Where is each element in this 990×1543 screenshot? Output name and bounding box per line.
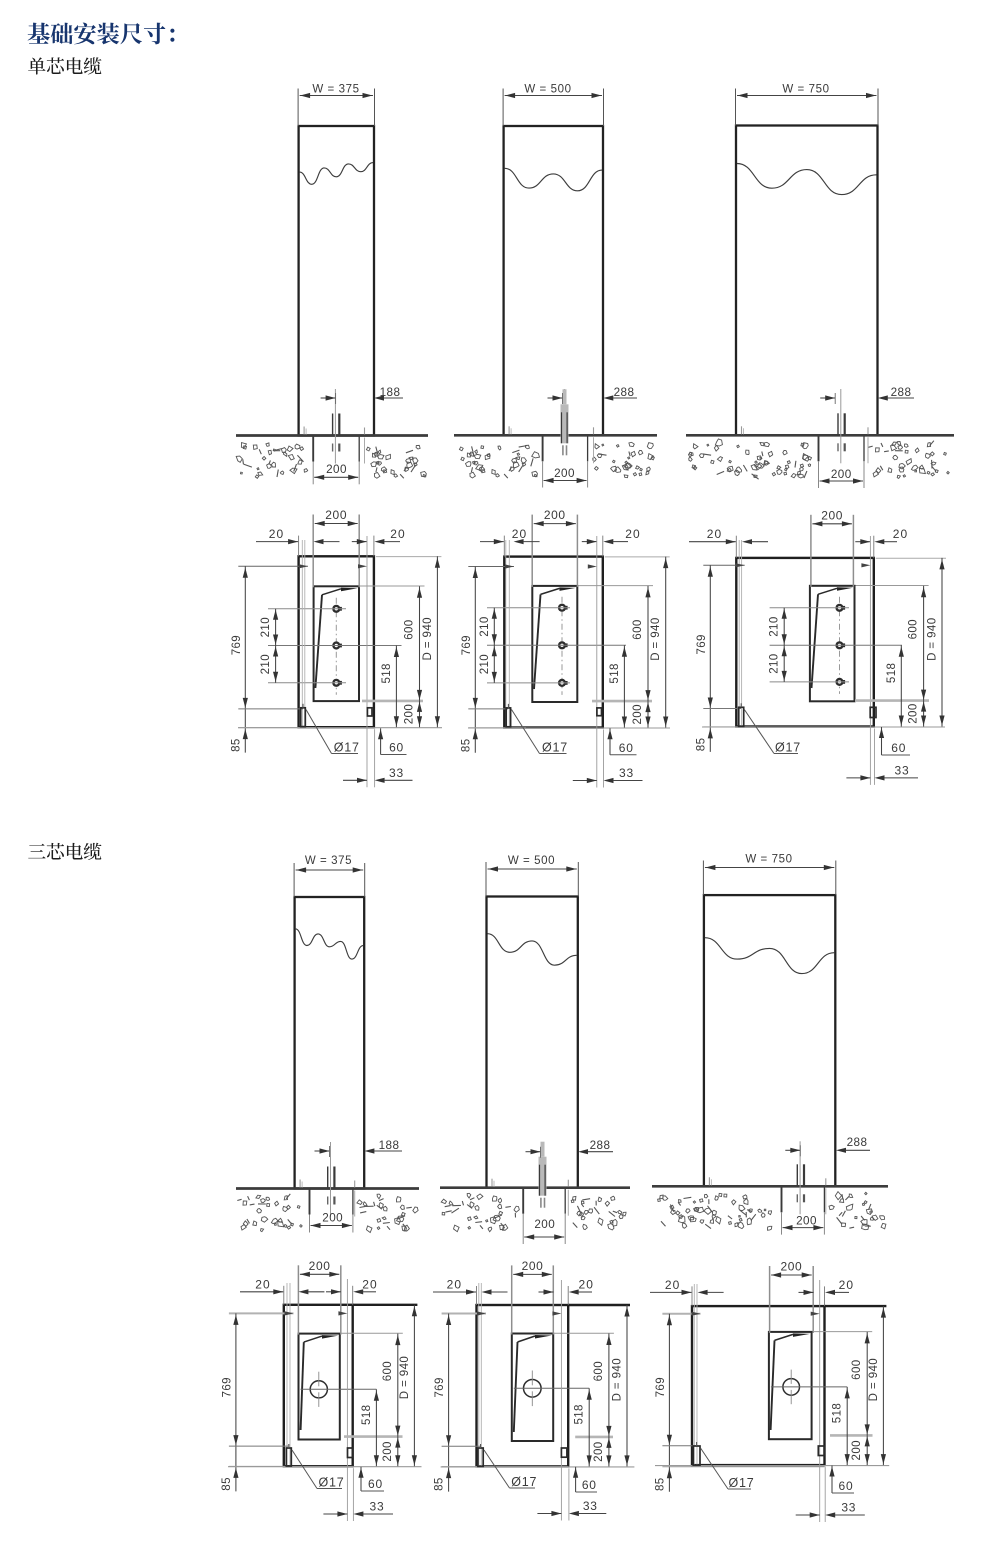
svg-text:33: 33 xyxy=(841,1501,856,1515)
svg-text:W = 375: W = 375 xyxy=(312,84,359,96)
svg-text:20: 20 xyxy=(625,527,641,541)
svg-text:33: 33 xyxy=(370,1500,385,1514)
svg-text:D = 940: D = 940 xyxy=(927,617,939,660)
svg-text:200: 200 xyxy=(821,508,843,522)
svg-text:600: 600 xyxy=(404,619,416,639)
svg-text:518: 518 xyxy=(574,1404,586,1424)
svg-text:200: 200 xyxy=(831,468,852,481)
svg-text:20: 20 xyxy=(579,1278,595,1292)
svg-text:518: 518 xyxy=(832,1403,844,1423)
svg-text:769: 769 xyxy=(696,634,708,654)
svg-text:85: 85 xyxy=(460,739,472,753)
svg-text:200: 200 xyxy=(404,704,416,724)
svg-text:D = 940: D = 940 xyxy=(650,617,662,660)
svg-text:769: 769 xyxy=(434,1377,446,1397)
svg-text:60: 60 xyxy=(582,1478,597,1492)
svg-text:20: 20 xyxy=(362,1277,378,1291)
svg-text:200: 200 xyxy=(544,508,566,522)
svg-text:85: 85 xyxy=(695,738,707,752)
svg-text:20: 20 xyxy=(269,527,285,541)
svg-text:518: 518 xyxy=(609,663,621,683)
svg-text:200: 200 xyxy=(325,508,347,522)
svg-text:20: 20 xyxy=(255,1277,271,1291)
svg-text:W = 750: W = 750 xyxy=(745,854,792,866)
svg-text:Ø17: Ø17 xyxy=(318,1476,344,1490)
svg-text:60: 60 xyxy=(389,741,404,755)
svg-text:33: 33 xyxy=(895,763,910,777)
svg-text:85: 85 xyxy=(230,738,242,752)
svg-text:288: 288 xyxy=(847,1136,868,1149)
svg-text:W = 750: W = 750 xyxy=(782,84,829,96)
svg-text:Ø17: Ø17 xyxy=(775,741,801,755)
svg-text:200: 200 xyxy=(780,1260,802,1274)
svg-text:210: 210 xyxy=(769,616,781,636)
svg-text:60: 60 xyxy=(368,1477,383,1491)
svg-text:33: 33 xyxy=(619,766,634,780)
svg-text:188: 188 xyxy=(379,1139,400,1152)
svg-text:33: 33 xyxy=(389,766,404,780)
svg-text:288: 288 xyxy=(614,386,635,399)
svg-text:200: 200 xyxy=(554,467,575,480)
svg-text:20: 20 xyxy=(893,527,909,541)
svg-text:518: 518 xyxy=(381,663,393,683)
svg-text:200: 200 xyxy=(522,1259,544,1273)
svg-text:210: 210 xyxy=(479,654,491,674)
svg-text:200: 200 xyxy=(326,463,347,476)
svg-text:288: 288 xyxy=(891,386,912,399)
svg-text:200: 200 xyxy=(534,1218,555,1231)
svg-text:288: 288 xyxy=(590,1139,611,1152)
svg-text:Ø17: Ø17 xyxy=(542,741,568,755)
svg-text:200: 200 xyxy=(851,1440,863,1460)
svg-text:60: 60 xyxy=(839,1479,854,1493)
svg-text:200: 200 xyxy=(632,704,644,724)
svg-text:20: 20 xyxy=(707,527,723,541)
svg-text:33: 33 xyxy=(583,1499,598,1513)
svg-text:600: 600 xyxy=(851,1359,863,1379)
svg-text:D = 940: D = 940 xyxy=(399,1356,411,1399)
svg-text:518: 518 xyxy=(886,663,898,683)
svg-text:Ø17: Ø17 xyxy=(334,741,360,755)
svg-text:Ø17: Ø17 xyxy=(728,1476,754,1490)
svg-text:210: 210 xyxy=(479,616,491,636)
svg-text:188: 188 xyxy=(380,386,401,399)
svg-text:D = 940: D = 940 xyxy=(612,1358,624,1401)
svg-text:W = 500: W = 500 xyxy=(508,855,555,867)
svg-text:200: 200 xyxy=(382,1441,394,1461)
svg-text:85: 85 xyxy=(221,1477,233,1491)
svg-text:60: 60 xyxy=(619,741,634,755)
svg-text:600: 600 xyxy=(908,619,920,639)
svg-text:600: 600 xyxy=(593,1361,605,1381)
svg-text:W = 375: W = 375 xyxy=(305,855,352,867)
svg-text:60: 60 xyxy=(891,741,906,755)
svg-text:769: 769 xyxy=(461,635,473,655)
svg-text:200: 200 xyxy=(309,1259,331,1273)
svg-text:20: 20 xyxy=(839,1278,855,1292)
svg-text:85: 85 xyxy=(654,1477,666,1491)
svg-text:769: 769 xyxy=(655,1377,667,1397)
svg-text:200: 200 xyxy=(322,1212,343,1225)
svg-text:518: 518 xyxy=(361,1405,373,1425)
svg-text:769: 769 xyxy=(221,1377,233,1397)
svg-text:D = 940: D = 940 xyxy=(422,617,434,660)
svg-text:600: 600 xyxy=(382,1361,394,1381)
svg-text:85: 85 xyxy=(434,1477,446,1491)
svg-text:20: 20 xyxy=(665,1278,681,1292)
svg-text:210: 210 xyxy=(769,653,781,673)
svg-text:210: 210 xyxy=(260,617,272,637)
svg-text:200: 200 xyxy=(908,703,920,723)
svg-text:D = 940: D = 940 xyxy=(868,1358,880,1401)
svg-text:200: 200 xyxy=(593,1441,605,1461)
svg-text:20: 20 xyxy=(447,1278,463,1292)
svg-text:600: 600 xyxy=(632,619,644,639)
svg-text:769: 769 xyxy=(231,635,243,655)
svg-text:200: 200 xyxy=(796,1215,817,1228)
svg-text:Ø17: Ø17 xyxy=(511,1475,537,1489)
svg-text:20: 20 xyxy=(390,527,406,541)
svg-text:20: 20 xyxy=(512,527,528,541)
svg-text:W = 500: W = 500 xyxy=(524,84,571,96)
svg-text:210: 210 xyxy=(260,654,272,674)
